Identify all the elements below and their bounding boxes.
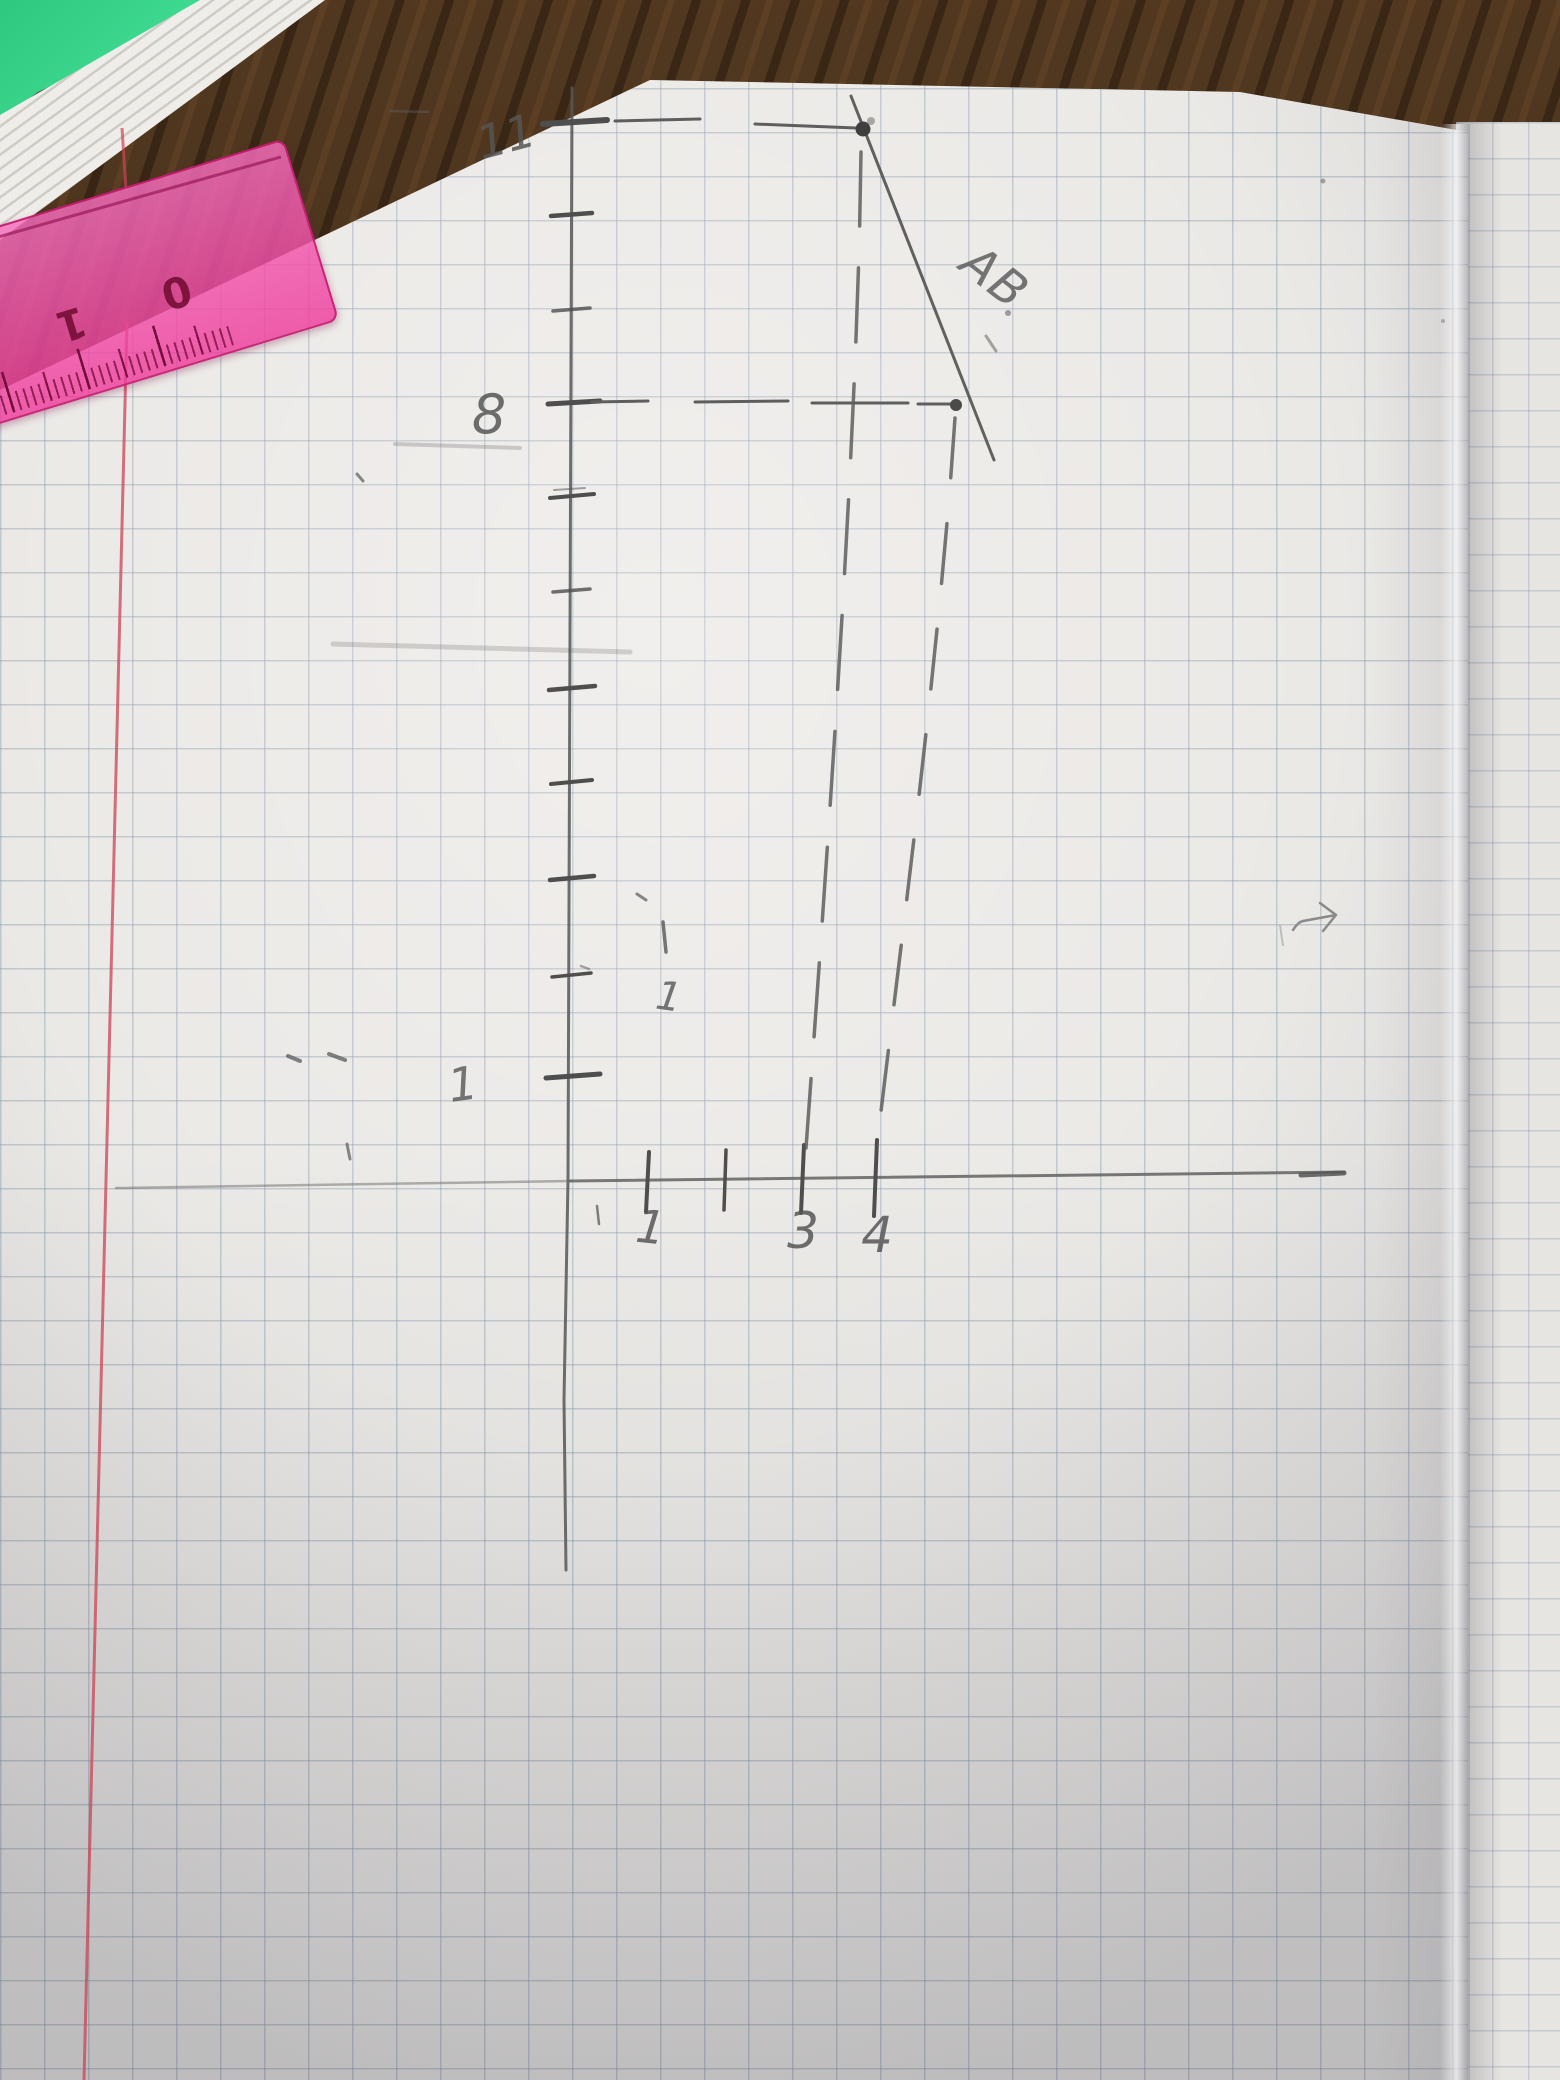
stray-tick [663,922,666,952]
ruler-number-1: 1 [50,296,92,351]
photo-scene: 11 8 1 1 3 4 AB 1 2 1 0 [0,0,1560,2080]
dashed-x3-line [806,152,861,1148]
arrow-side-dash [1280,925,1283,946]
stray-label-1: 1 [653,973,685,1022]
x-label-3: 3 [787,1202,819,1260]
point-b-dot [950,399,962,411]
right-arrow-icon [1293,903,1336,931]
y-label-1: 1 [445,1055,482,1113]
y-label-8: 8 [472,383,506,446]
segment-ab-label: AB [948,232,1040,321]
x-label-1: 1 [633,1199,668,1256]
y-axis-ticks [543,120,607,1078]
x-axis-line-left [116,1181,570,1188]
point-a-smudge [867,117,875,125]
margin-line [84,322,127,2080]
pencil-flecks [288,336,996,1159]
dashed-x4-line [877,418,955,1145]
stray-dot [1441,319,1445,323]
margin-line-on-spine [122,128,126,190]
stray-dot [1321,179,1326,184]
x-label-4: 4 [861,1206,893,1264]
stray-dot [1005,310,1011,316]
x-axis-line-right [570,1172,1344,1181]
x-axis-end-stroke [1301,1173,1344,1175]
ruler-number-0: 0 [155,264,197,319]
y-label-11: 11 [471,103,542,170]
